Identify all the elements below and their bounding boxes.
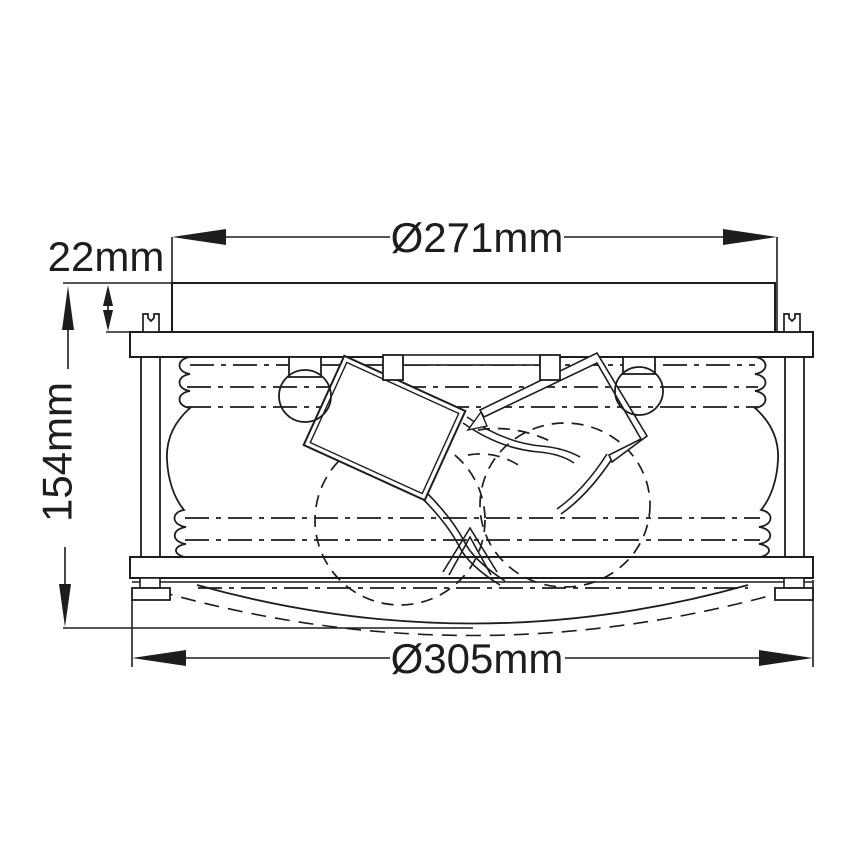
dimension-label-canopy-height: 22mm <box>48 233 165 280</box>
dimension-label-top-diameter: Ø271mm <box>391 214 564 261</box>
screw-foot-right <box>775 588 813 600</box>
arrowhead-down <box>59 584 71 627</box>
crossbar <box>403 355 540 365</box>
glass-bowl-hidden-outline <box>158 591 787 636</box>
canopy <box>172 283 775 332</box>
arrowhead-right <box>759 650 813 666</box>
arrowhead-up <box>62 286 74 330</box>
arrowhead-right <box>723 229 777 245</box>
arrowhead-left <box>132 650 186 666</box>
ribbed-shade-right-edge <box>755 357 778 558</box>
screw-tab-right <box>784 314 800 332</box>
technical-drawing-page: Ø271mm 22mm 154mm Ø305mm <box>0 0 868 868</box>
screw-foot-left <box>132 588 170 600</box>
post-end-right <box>784 578 804 588</box>
dimension-label-base-diameter: Ø305mm <box>391 635 564 682</box>
glass-bowl-outline <box>197 585 748 624</box>
dimension-canopy-height <box>103 285 113 331</box>
arrowhead-left <box>172 229 226 245</box>
crossbar-tab-left <box>383 355 403 380</box>
arrowhead-up <box>103 285 113 306</box>
post-end-left <box>140 578 160 588</box>
crossbar-tab-right <box>540 355 560 380</box>
dimension-label-fixture-height: 154mm <box>34 382 81 522</box>
screw-tab-left <box>143 314 159 332</box>
fixture-drawing: Ø271mm 22mm 154mm Ø305mm <box>0 0 868 868</box>
top-ring <box>130 332 813 357</box>
ribbed-shade-left-edge <box>167 357 190 558</box>
arrowhead-down <box>103 310 113 331</box>
